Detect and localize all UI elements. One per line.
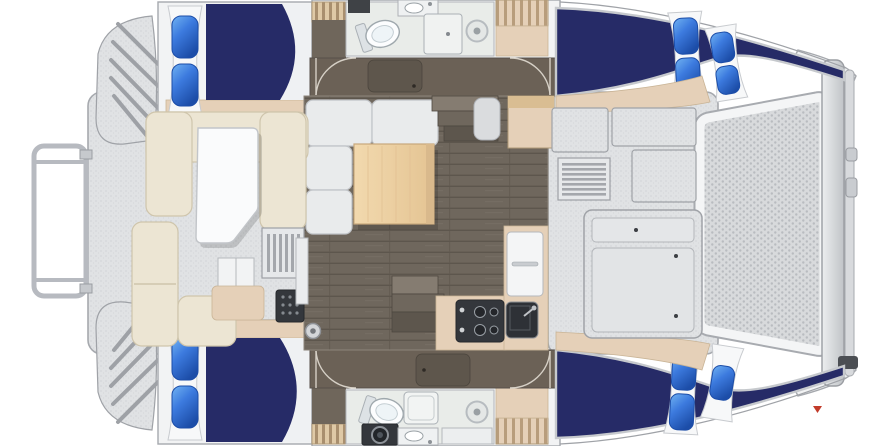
deck-box xyxy=(632,150,696,202)
cockpit-bench-stbd-arm xyxy=(260,112,306,230)
starboard-head xyxy=(346,390,494,445)
forward-crossbeam xyxy=(822,60,844,386)
salon-door xyxy=(296,238,308,304)
pillow xyxy=(172,16,198,58)
fastener-dot xyxy=(634,228,638,232)
cockpit-bench-port-arm xyxy=(146,112,192,216)
starboard-locker-cabinet xyxy=(496,388,548,418)
winch xyxy=(306,324,321,339)
starboard-companionway-steps xyxy=(312,424,348,444)
sideboard-cabinet xyxy=(508,96,554,148)
refrigerator xyxy=(507,232,543,296)
trampoline xyxy=(700,98,824,351)
head-counter xyxy=(442,428,492,444)
handle-dot xyxy=(422,368,426,372)
floor-plan-canvas xyxy=(0,0,890,446)
louvered-vent-foredeck xyxy=(558,158,610,200)
starboard-shelved-locker xyxy=(496,418,548,444)
port-companionway-steps xyxy=(312,2,348,22)
rail-bracket xyxy=(80,150,92,159)
pillow xyxy=(172,386,198,428)
cockpit-side-table xyxy=(212,286,264,320)
cockpit xyxy=(132,112,321,346)
port-shelved-locker xyxy=(496,0,548,26)
red-watermark-arrow xyxy=(813,406,822,413)
port-locker-cabinet xyxy=(496,26,548,56)
faucet xyxy=(428,440,432,444)
fridge-handle xyxy=(512,262,538,266)
crossbeam-rail xyxy=(845,70,854,376)
vanity xyxy=(348,0,370,13)
faucet xyxy=(428,2,432,6)
nav-seat xyxy=(474,98,500,140)
bow-section xyxy=(700,50,858,396)
shower-stall xyxy=(424,14,462,54)
pillow xyxy=(172,64,198,106)
deck-locker xyxy=(552,108,608,152)
deck-locker xyxy=(612,108,696,146)
port-passage-floor xyxy=(312,20,346,58)
port-forward-pillow-panel-2 xyxy=(705,24,748,102)
bow-cleat xyxy=(846,148,857,161)
cooktop xyxy=(456,300,504,342)
galley-sink xyxy=(506,302,538,338)
deck-hatch-large xyxy=(584,210,702,338)
starboard-passage-floor xyxy=(312,388,346,424)
starboard-wardrobe-band xyxy=(310,350,556,388)
starboard-forward-pillow-panel-2 xyxy=(701,344,744,422)
catamaran-floor-plan xyxy=(0,0,890,446)
fastener-dot xyxy=(674,314,678,318)
port-head xyxy=(346,0,494,56)
stern-rail xyxy=(34,146,92,296)
fastener-dot xyxy=(674,254,678,258)
bow-cleat xyxy=(846,178,857,197)
handle-dot xyxy=(412,84,416,88)
salon xyxy=(304,96,554,350)
rail-bracket xyxy=(80,284,92,293)
port-wardrobe-band xyxy=(310,58,556,96)
dining-table xyxy=(354,144,434,224)
